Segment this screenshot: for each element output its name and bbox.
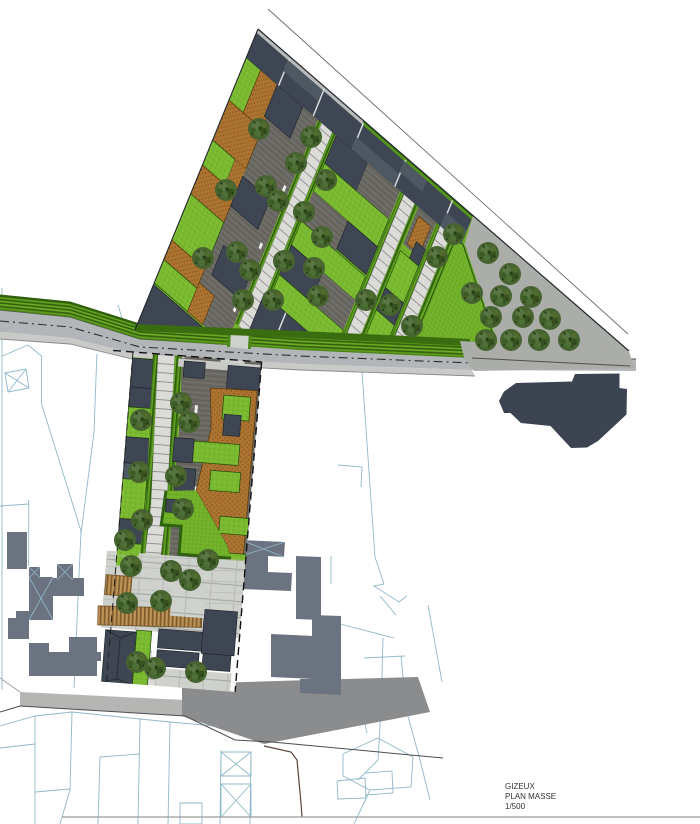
svg-text:PLAN MASSE: PLAN MASSE bbox=[505, 792, 556, 801]
svg-text:1/500: 1/500 bbox=[505, 802, 526, 811]
svg-text:GIZEUX: GIZEUX bbox=[505, 782, 535, 791]
